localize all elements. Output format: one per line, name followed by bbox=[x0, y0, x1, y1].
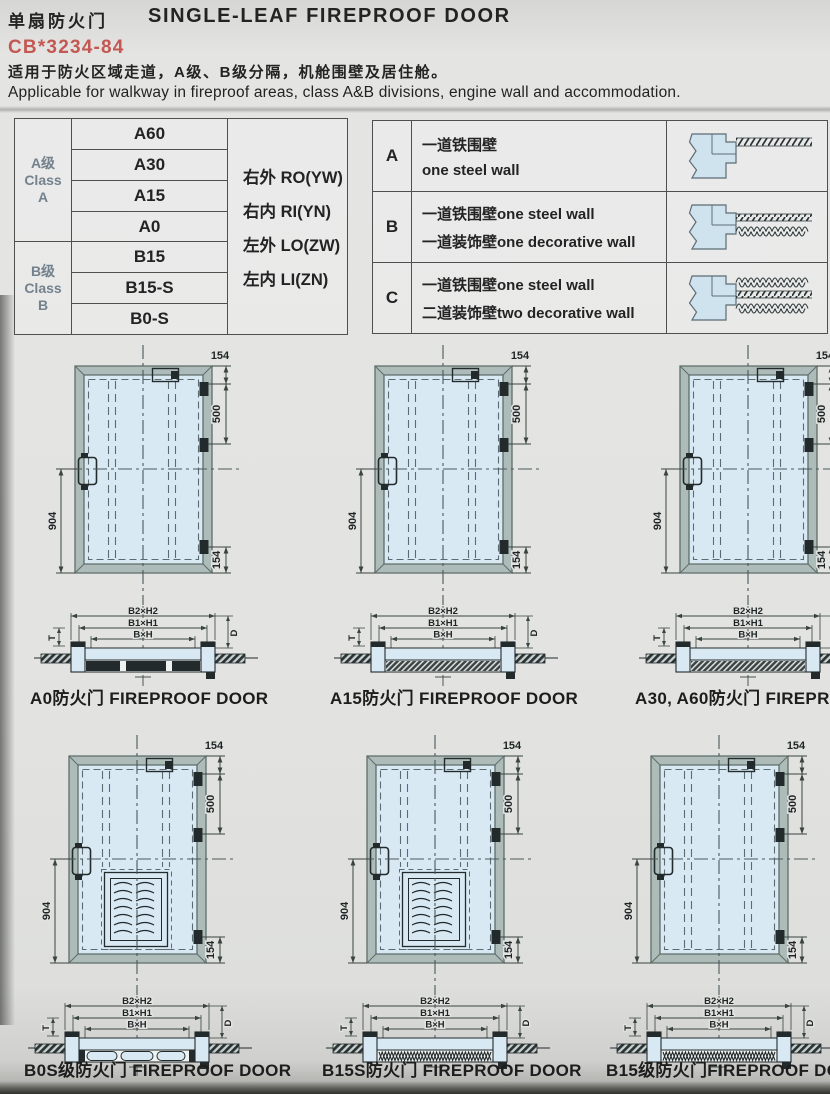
door-section-view: B2×H2B1×H1B×HDT bbox=[30, 606, 265, 686]
class-b-group-label: B级 Class B bbox=[15, 242, 71, 334]
class-a-zh: A级 bbox=[31, 155, 55, 172]
dim-label-t: T bbox=[623, 1025, 634, 1031]
wall-desc-line: 一道铁围壁one steel wall bbox=[422, 203, 666, 224]
door-front-view: 154500154904 bbox=[635, 343, 830, 608]
section-figure-a0: B2×H2B1×H1B×HDT bbox=[30, 606, 265, 691]
rating-cell: A30 bbox=[72, 150, 227, 181]
dim-label-t: T bbox=[347, 635, 358, 641]
dim-label-904: 904 bbox=[347, 511, 359, 530]
dim-label-500: 500 bbox=[211, 405, 223, 423]
dim-label-b2h2: B2×H2 bbox=[704, 996, 734, 1007]
orientation-item: 右外 RO(YW) bbox=[243, 164, 347, 188]
wall-type-table: A 一道铁围壁 one steel wall B 一道铁围壁one steel … bbox=[372, 120, 828, 334]
class-column: A级 Class A B级 Class B bbox=[15, 119, 72, 334]
wall-desc-line: 一道铁围壁one steel wall bbox=[422, 274, 666, 295]
dim-label-b2h2: B2×H2 bbox=[733, 606, 763, 617]
door-figure-a30-a60: 154500154904 bbox=[635, 343, 830, 613]
dim-label-904: 904 bbox=[623, 901, 635, 920]
dim-label-154-bottom: 154 bbox=[503, 940, 515, 959]
figure-caption: B0S级防火门 FIREPROOF DOOR bbox=[24, 1056, 259, 1081]
rating-cell: A60 bbox=[72, 119, 227, 150]
dim-label-b1h1: B1×H1 bbox=[122, 1008, 153, 1019]
door-front-view: 154500154904 bbox=[24, 733, 259, 998]
door-front-view: 154500154904 bbox=[606, 733, 830, 998]
dim-label-904: 904 bbox=[339, 901, 351, 920]
door-section-view: B2×H2B1×H1B×HDT bbox=[330, 606, 565, 686]
wall-type-key: C bbox=[373, 263, 412, 333]
wall-profile-figure bbox=[667, 263, 827, 333]
standard-number: CB*3234-84 bbox=[8, 37, 125, 59]
dim-label-b1h1: B1×H1 bbox=[128, 618, 159, 629]
dim-label-d: D bbox=[229, 629, 240, 636]
wall-profile-diagram bbox=[672, 130, 822, 182]
orientation-list: 右外 RO(YW) 右内 RI(YN) 左外 LO(ZW) 左内 LI(ZN) bbox=[228, 119, 347, 334]
dim-label-t: T bbox=[41, 1025, 52, 1031]
wall-type-description: 一道铁围壁 one steel wall bbox=[412, 121, 667, 191]
dim-label-500: 500 bbox=[205, 795, 217, 813]
figure-caption: B15级防火门FIREPROOF DOOR bbox=[606, 1056, 830, 1081]
figure-caption: B15S防火门 FIREPROOF DOOR bbox=[322, 1056, 557, 1081]
orientation-item: 左内 LI(ZN) bbox=[243, 266, 347, 290]
dim-label-bh: B×H bbox=[738, 630, 757, 641]
class-a-en2: A bbox=[38, 189, 48, 206]
door-front-view: 154500154904 bbox=[30, 343, 265, 608]
door-front-view: 154500154904 bbox=[330, 343, 565, 608]
wall-desc-line: one steel wall bbox=[422, 162, 666, 179]
dim-label-154-bottom: 154 bbox=[511, 550, 523, 569]
door-figure-a0: 154500154904 bbox=[30, 343, 265, 613]
door-figure-b15s: 154500154904 bbox=[322, 733, 557, 1003]
dim-label-500: 500 bbox=[503, 795, 515, 813]
dim-label-bh: B×H bbox=[127, 1020, 146, 1031]
figure-caption: A0防火门 FIREPROOF DOOR bbox=[30, 684, 265, 709]
figure-caption: A15防火门 FIREPROOF DOOR bbox=[330, 684, 565, 709]
dim-label-154-bottom: 154 bbox=[787, 940, 799, 959]
class-rating-table: A级 Class A B级 Class B A60 A30 A15 A0 B15… bbox=[14, 118, 348, 335]
dim-label-154-top: 154 bbox=[211, 350, 230, 362]
wall-type-description: 一道铁围壁one steel wall 二道装饰壁two decorative … bbox=[412, 263, 667, 333]
dim-label-d: D bbox=[805, 1019, 816, 1026]
dim-label-154-top: 154 bbox=[816, 350, 830, 362]
wall-type-row-b: B 一道铁围壁one steel wall 一道装饰壁one decorativ… bbox=[373, 192, 827, 263]
section-figure-a30-a60: B2×H2B1×H1B×HDT bbox=[635, 606, 830, 691]
door-figure-b0s: 154500154904 bbox=[24, 733, 259, 1003]
dim-label-d: D bbox=[223, 1019, 234, 1026]
dim-label-154-bottom: 154 bbox=[211, 550, 223, 569]
dim-label-t: T bbox=[652, 635, 663, 641]
wall-desc-line: 二道装饰壁two decorative wall bbox=[422, 302, 666, 323]
dim-label-t: T bbox=[339, 1025, 350, 1031]
dim-label-500: 500 bbox=[787, 795, 799, 813]
dim-label-904: 904 bbox=[47, 511, 59, 530]
wall-desc-line: 一道铁围壁 bbox=[422, 134, 666, 155]
dim-label-bh: B×H bbox=[709, 1020, 728, 1031]
dim-label-154-top: 154 bbox=[511, 350, 530, 362]
dim-label-b1h1: B1×H1 bbox=[420, 1008, 451, 1019]
rating-cell: A0 bbox=[72, 212, 227, 243]
dim-label-b2h2: B2×H2 bbox=[420, 996, 450, 1007]
wall-type-key: A bbox=[373, 121, 412, 191]
page-title-zh: 单扇防火门 bbox=[8, 7, 108, 32]
door-figure-a15: 154500154904 bbox=[330, 343, 565, 613]
scan-shadow-line bbox=[0, 106, 830, 113]
class-b-en2: B bbox=[38, 297, 48, 314]
dim-label-d: D bbox=[521, 1019, 532, 1026]
dim-label-904: 904 bbox=[41, 901, 53, 920]
dim-label-bh: B×H bbox=[425, 1020, 444, 1031]
dim-label-b2h2: B2×H2 bbox=[122, 996, 152, 1007]
figure-caption: A30, A60防火门 FIREPROOF DOOR bbox=[635, 684, 830, 709]
dim-label-bh: B×H bbox=[433, 630, 452, 641]
class-a-en1: Class bbox=[24, 172, 61, 189]
dim-label-b2h2: B2×H2 bbox=[128, 606, 158, 617]
rating-cell: B15-S bbox=[72, 273, 227, 304]
dim-label-154-top: 154 bbox=[503, 740, 522, 752]
rating-cell: B0-S bbox=[72, 304, 227, 334]
scan-page-edge bbox=[0, 1081, 830, 1094]
class-b-en1: Class bbox=[24, 280, 61, 297]
class-a-group-label: A级 Class A bbox=[15, 119, 71, 242]
door-front-view: 154500154904 bbox=[322, 733, 557, 998]
dim-label-154-bottom: 154 bbox=[816, 550, 828, 569]
wall-profile-figure bbox=[667, 192, 827, 262]
wall-desc-line: 一道装饰壁one decorative wall bbox=[422, 231, 666, 252]
wall-type-row-a: A 一道铁围壁 one steel wall bbox=[373, 121, 827, 192]
description-zh: 适用于防火区域走道，A级、B级分隔，机舱围壁及居住舱。 bbox=[8, 61, 448, 82]
door-figure-b15: 154500154904 bbox=[606, 733, 830, 1003]
scan-spine-shadow bbox=[0, 295, 15, 1025]
dim-label-b1h1: B1×H1 bbox=[733, 618, 764, 629]
class-b-zh: B级 bbox=[31, 263, 55, 280]
section-figure-a15: B2×H2B1×H1B×HDT bbox=[330, 606, 565, 691]
dim-label-904: 904 bbox=[652, 511, 664, 530]
rating-column: A60 A30 A15 A0 B15 B15-S B0-S bbox=[72, 119, 228, 334]
dim-label-bh: B×H bbox=[133, 630, 152, 641]
rating-cell: A15 bbox=[72, 181, 227, 212]
dim-label-154-bottom: 154 bbox=[205, 940, 217, 959]
dim-label-b2h2: B2×H2 bbox=[428, 606, 458, 617]
dim-label-b1h1: B1×H1 bbox=[428, 618, 459, 629]
wall-type-description: 一道铁围壁one steel wall 一道装饰壁one decorative … bbox=[412, 192, 667, 262]
orientation-item: 左外 LO(ZW) bbox=[243, 232, 347, 256]
dim-label-154-top: 154 bbox=[787, 740, 806, 752]
dim-label-t: T bbox=[47, 635, 58, 641]
page-title-en: SINGLE-LEAF FIREPROOF DOOR bbox=[148, 5, 511, 28]
wall-profile-diagram bbox=[672, 272, 822, 324]
dim-label-d: D bbox=[529, 629, 540, 636]
dim-label-b1h1: B1×H1 bbox=[704, 1008, 735, 1019]
dim-label-500: 500 bbox=[511, 405, 523, 423]
wall-type-row-c: C 一道铁围壁one steel wall 二道装饰壁two decorativ… bbox=[373, 263, 827, 333]
dim-label-500: 500 bbox=[816, 405, 828, 423]
dim-label-154-top: 154 bbox=[205, 740, 224, 752]
rating-cell: B15 bbox=[72, 242, 227, 273]
orientation-item: 右内 RI(YN) bbox=[243, 198, 347, 222]
door-section-view: B2×H2B1×H1B×HDT bbox=[635, 606, 830, 686]
wall-profile-figure bbox=[667, 121, 827, 191]
wall-type-key: B bbox=[373, 192, 412, 262]
wall-profile-diagram bbox=[672, 201, 822, 253]
scanned-catalog-page: 单扇防火门 SINGLE-LEAF FIREPROOF DOOR CB*3234… bbox=[0, 0, 830, 1094]
description-en: Applicable for walkway in fireproof area… bbox=[8, 84, 681, 102]
